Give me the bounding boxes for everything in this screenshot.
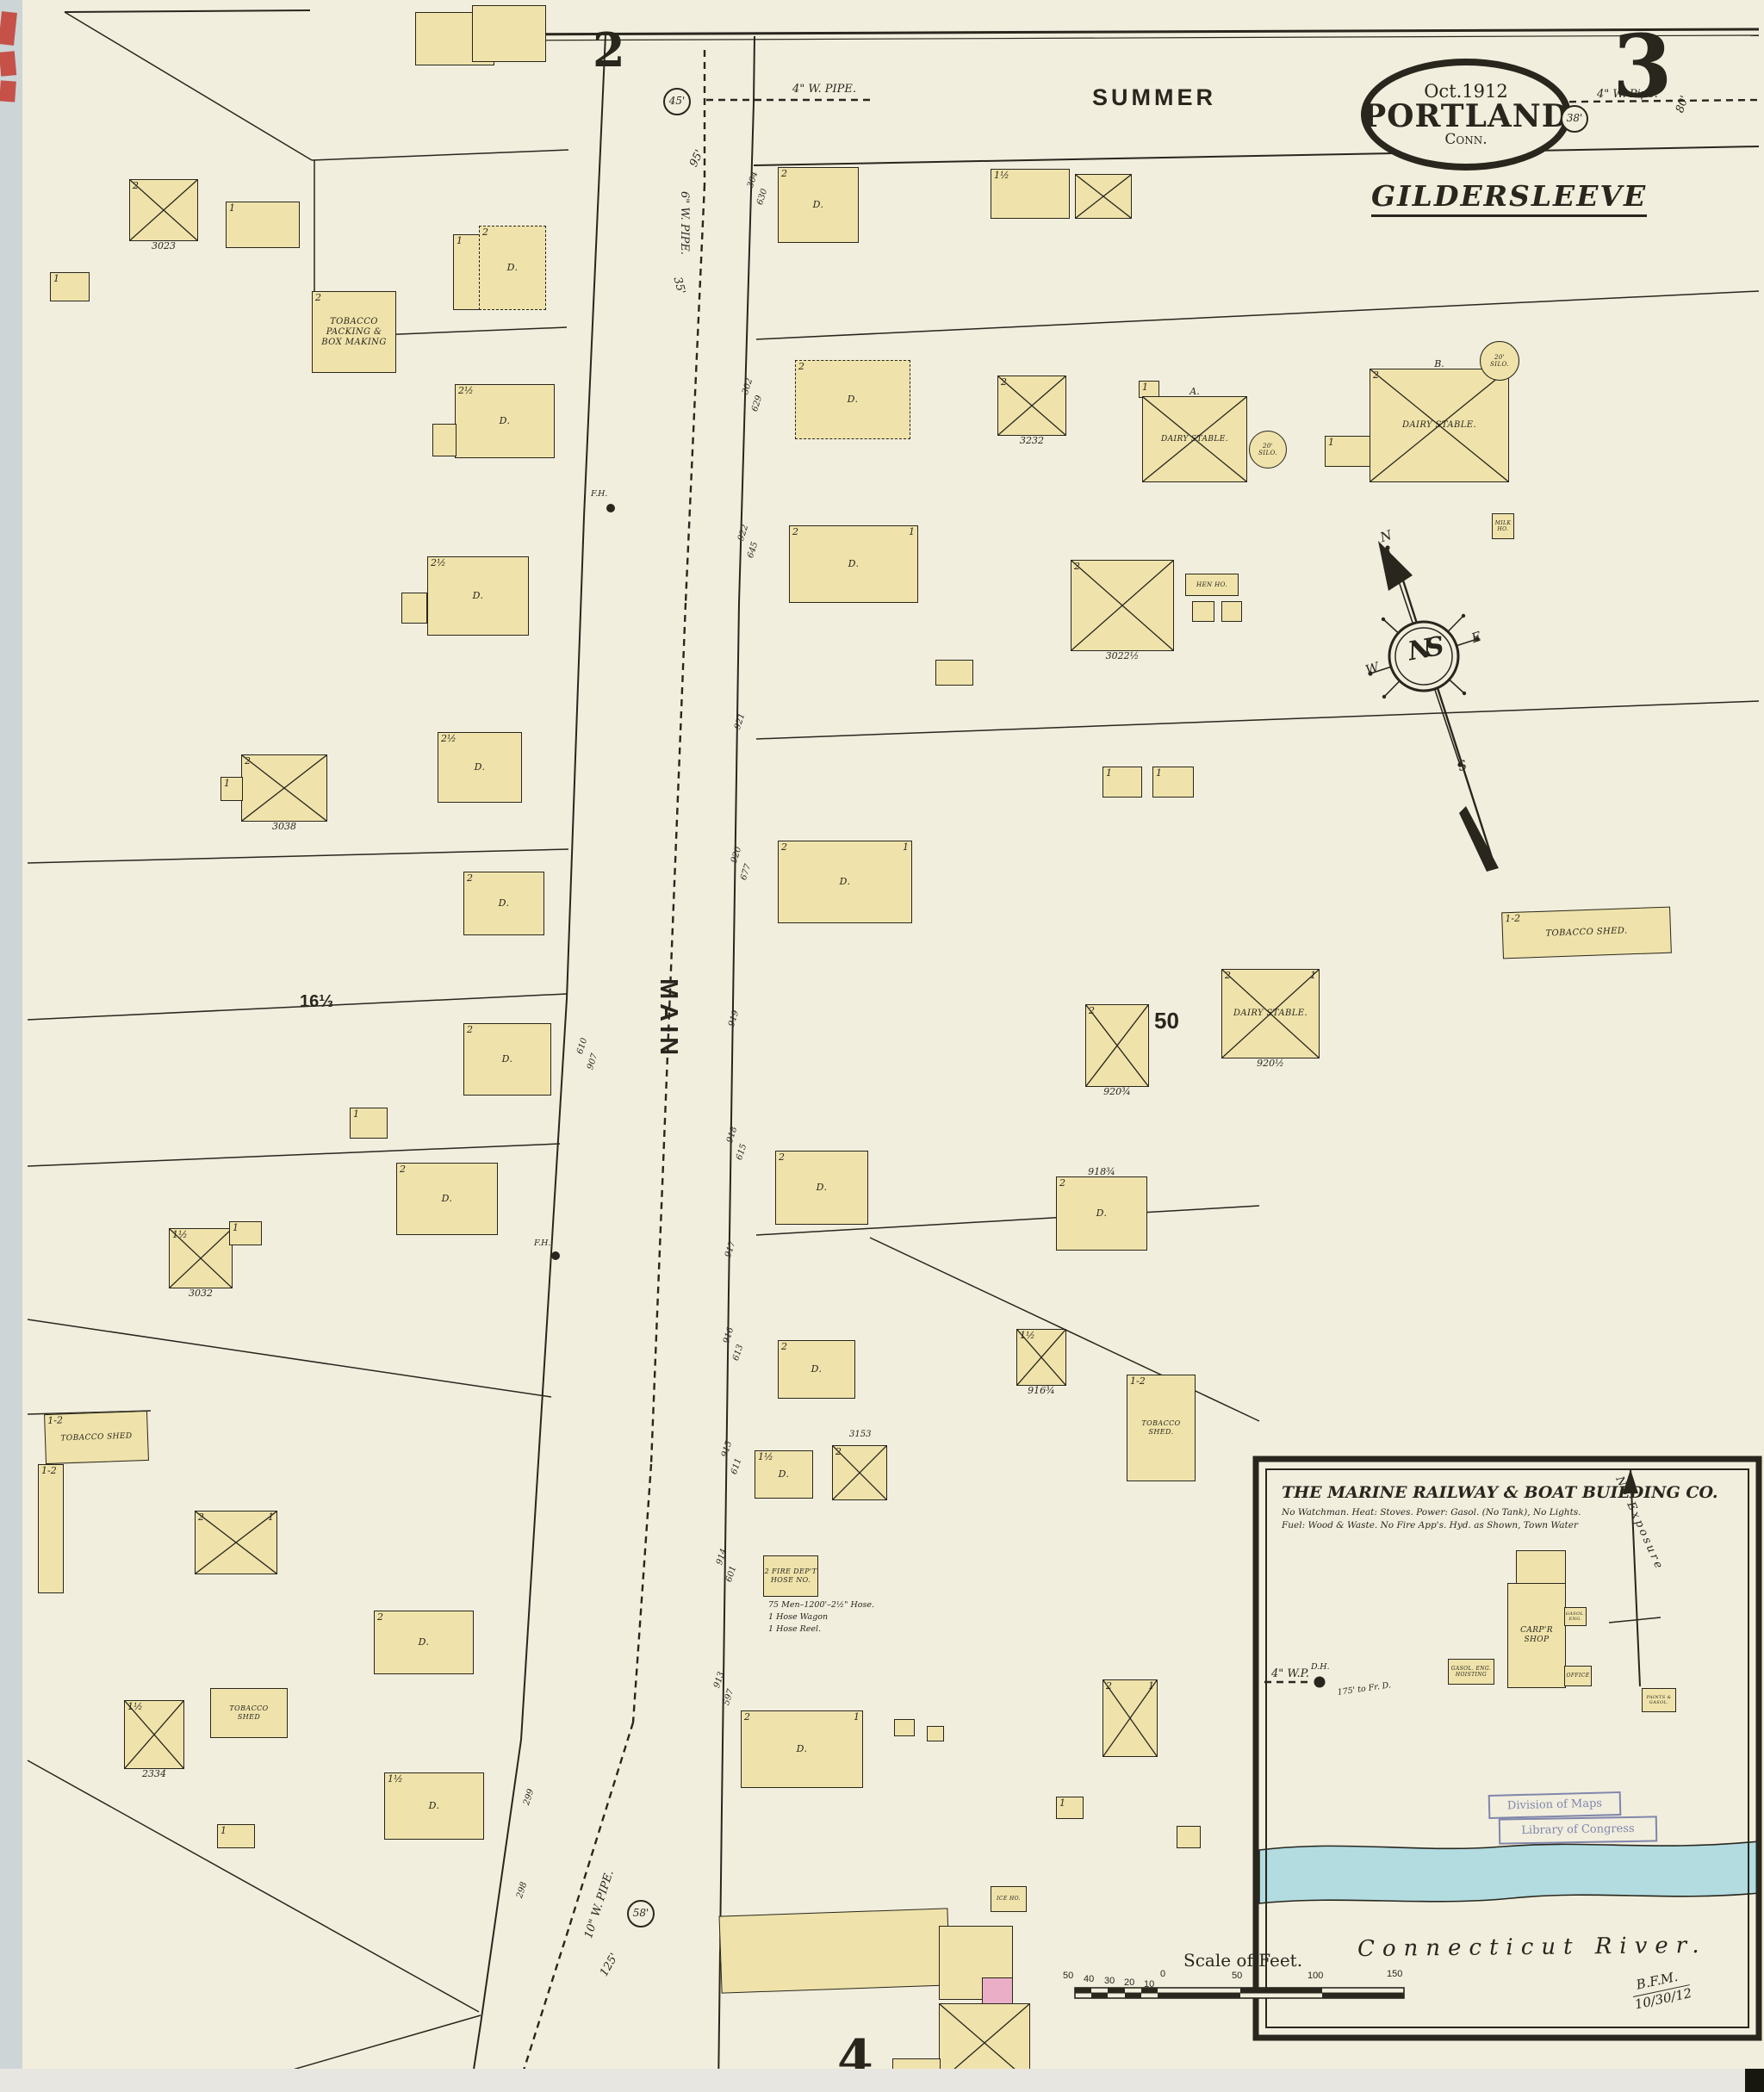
building: TOBACCO SHED.1-2: [1501, 907, 1672, 959]
map-label: 58': [627, 1900, 655, 1927]
building-stories: 2: [377, 1611, 383, 1623]
building-label: DAIRY STABLE.: [1222, 970, 1319, 1058]
building: 1: [226, 202, 300, 248]
building-label: PAINTS & GASOL.: [1643, 1689, 1675, 1711]
building: 21: [195, 1511, 277, 1574]
map-label: 20: [1124, 1977, 1134, 1988]
building-stories: 1: [909, 526, 915, 537]
building: 1: [229, 1221, 262, 1245]
building-stories: 1: [353, 1108, 359, 1120]
building: D.2: [775, 1151, 868, 1225]
building: DAIRY STABLE.A.: [1142, 396, 1247, 482]
building-annotation: B.: [1434, 358, 1444, 369]
building: GASOL. ENG.: [1564, 1607, 1587, 1626]
building-label: D.: [742, 1711, 862, 1787]
map-linework: [0, 0, 1764, 2092]
building: 1: [220, 777, 243, 801]
building-stories: 1: [1156, 767, 1162, 779]
building: D.2½: [455, 384, 555, 458]
building-stories: 1: [1106, 767, 1112, 779]
map-label: 150: [1387, 1969, 1402, 1979]
building-label: D.: [480, 227, 545, 309]
building-stories: 1: [1310, 970, 1316, 981]
building-address: 3023: [152, 240, 176, 251]
building-label: DAIRY STABLE.: [1370, 369, 1508, 481]
building-stories: 2: [1001, 376, 1007, 388]
building-label: GASOL. ENG.: [1565, 1608, 1586, 1625]
building-label: D.: [428, 557, 528, 635]
logo-city: PORTLAND: [1363, 102, 1569, 131]
stamp-division-of-maps: Division of Maps: [1488, 1791, 1622, 1819]
map-label: 3153: [849, 1430, 871, 1439]
building-stories: 1: [220, 1825, 227, 1836]
building-label: D.: [779, 1341, 854, 1398]
building-address: 920¾: [1103, 1086, 1131, 1097]
map-label: 50: [1063, 1971, 1073, 1981]
building-stories: 2: [482, 227, 488, 238]
building-stories: 1: [457, 235, 463, 246]
building-stories: 1½: [172, 1229, 188, 1240]
building-address: 2334: [142, 1768, 166, 1779]
building: D.2: [396, 1163, 498, 1235]
building: D.2: [795, 360, 910, 439]
building: D.2½: [438, 732, 522, 803]
building: DAIRY STABLE.2B.: [1370, 369, 1509, 482]
building: DAIRY STABLE.21920½: [1221, 969, 1320, 1058]
map-label: 4" W. PIPE.: [792, 83, 856, 96]
building: 23023: [129, 179, 198, 241]
building: D.2: [778, 167, 859, 243]
building-stories: 1: [1148, 1680, 1154, 1692]
building: 1: [1152, 767, 1194, 798]
building-stories: 2: [467, 1024, 473, 1035]
building: PAINTS & GASOL.: [1642, 1688, 1676, 1712]
cross-brace-icon: [1076, 175, 1131, 218]
building-label: TOBACCO SHED: [211, 1689, 287, 1737]
building-stories: 1½: [127, 1701, 143, 1712]
building: 1½3032: [169, 1228, 233, 1288]
cross-brace-icon: [242, 755, 326, 821]
building: D.2: [463, 1023, 551, 1096]
building-stories: 2: [835, 1446, 842, 1457]
building-stories: 1½: [758, 1451, 773, 1462]
building-stories: 2: [467, 872, 473, 884]
map-label: F.H.: [591, 489, 607, 499]
map-label: 38': [1561, 105, 1588, 133]
building-address: 916¾: [1028, 1385, 1055, 1396]
building-stories: 2: [744, 1711, 750, 1723]
building-label: D.: [779, 841, 911, 922]
building: D.2918¾: [1056, 1176, 1147, 1251]
building-stories: 2: [315, 292, 321, 303]
building: GASOL. ENG. HOISTING: [1448, 1659, 1494, 1685]
building: D.21: [741, 1710, 863, 1788]
map-label: 16⅓: [300, 992, 333, 1012]
building: 23038: [241, 754, 327, 822]
building-label: D.: [1057, 1177, 1146, 1250]
building-stories: 1-2: [1505, 913, 1520, 925]
building-label: HEN HO.: [1186, 574, 1238, 595]
building: TOBACCO PACKING & BOX MAKING2: [312, 291, 396, 373]
building: [1192, 601, 1214, 622]
building: HEN HO.: [1185, 574, 1239, 596]
building-stories: 2: [198, 1512, 204, 1523]
building-label: 20' SILO.: [1481, 342, 1519, 380]
map-label: D.H.: [1311, 1662, 1330, 1672]
building: D.2: [463, 872, 544, 935]
building-stories: 1: [53, 273, 59, 284]
map-label: 40: [1084, 1974, 1094, 1984]
building: 21: [1102, 1679, 1158, 1757]
building-label: D.: [796, 361, 910, 438]
building-label: 2 FIRE DEP'T HOSE NO.: [764, 1556, 817, 1596]
building: D.2: [778, 1340, 855, 1399]
building: 1: [1056, 1797, 1084, 1819]
street-label-main: MAIN: [654, 978, 682, 1059]
building-stories: 1: [233, 1222, 239, 1233]
building-stories: 2: [781, 841, 787, 853]
building-stories: 2: [781, 168, 787, 179]
building-stories: 1: [1142, 382, 1148, 393]
building: D.2½: [427, 556, 529, 636]
building: 1-2: [38, 1464, 64, 1593]
adjacent-sheet-number-top: 2: [593, 22, 625, 78]
map-label: 45': [663, 88, 691, 115]
building-label: D.: [464, 1024, 550, 1095]
cross-brace-icon: [130, 180, 197, 240]
building: [432, 424, 457, 456]
silo: 20' SILO.: [1480, 341, 1519, 381]
building-label: OFFICE: [1565, 1667, 1591, 1685]
building: [927, 1726, 944, 1741]
building-address: 3022½: [1106, 650, 1140, 661]
building-label: 20' SILO.: [1250, 431, 1286, 468]
building-stories: 1: [854, 1711, 860, 1723]
building-stories: 2: [779, 1152, 785, 1163]
red-edge-mark: [0, 51, 16, 76]
cross-brace-icon: [196, 1512, 276, 1574]
building-stories: 2: [792, 526, 798, 537]
map-label: 4" W.P.: [1271, 1667, 1309, 1680]
building: D.21: [778, 841, 912, 923]
building-stories: 1: [1328, 437, 1334, 448]
building-address: 3032: [189, 1288, 213, 1299]
street-label-summer: SUMMER: [1092, 84, 1216, 111]
building: D.2: [479, 226, 546, 310]
building: OFFICE: [1564, 1666, 1592, 1686]
building-label: TOBACCO SHED.: [1502, 908, 1671, 959]
building-stories: 2: [781, 1341, 787, 1352]
building-stories: 1: [229, 202, 235, 214]
building-stories: 1: [1059, 1797, 1065, 1809]
building: [1177, 1826, 1201, 1848]
building: [935, 660, 973, 686]
building: 1½: [991, 169, 1070, 219]
inset-title: THE MARINE RAILWAY & BOAT BUILDING CO.: [1282, 1483, 1718, 1502]
sanborn-map-sheet: 3 2 4 SUMMER MAIN GILDERSLEEVE Connectic…: [0, 0, 1764, 2092]
map-label: NS: [1406, 632, 1441, 667]
map-label: 50: [1232, 1971, 1242, 1981]
building: [894, 1719, 915, 1736]
map-label: 30: [1104, 1976, 1115, 1986]
cross-brace-icon: [1086, 1005, 1148, 1086]
building-stories: 2: [1106, 1680, 1112, 1692]
map-label: 1 Hose Wagon: [768, 1612, 828, 1622]
building-stories: 2: [400, 1164, 406, 1175]
scan-dark-corner: [1745, 2069, 1764, 2092]
building-stories: 1: [224, 778, 230, 789]
building-stories: 1½: [388, 1773, 403, 1785]
building-address: 3038: [272, 821, 296, 832]
building: [1221, 601, 1242, 622]
building: 1½916¾: [1016, 1329, 1066, 1386]
cross-brace-icon: [1071, 561, 1173, 650]
building: 1: [1325, 436, 1373, 467]
building-stories: 2: [1074, 561, 1080, 572]
red-edge-mark: [0, 80, 16, 102]
building: [401, 593, 427, 624]
building-label: D.: [779, 168, 858, 242]
building: 2: [832, 1445, 887, 1500]
building: CARP'R SHOP: [1507, 1583, 1566, 1688]
building: ICE HO.: [991, 1886, 1027, 1912]
building-stories: 2½: [458, 385, 474, 396]
logo-state: Conn.: [1444, 131, 1487, 148]
building: [1516, 1550, 1566, 1586]
building: 23232: [997, 376, 1066, 436]
building: [719, 1908, 951, 1993]
cross-brace-icon: [998, 376, 1065, 435]
inset-note-line2: Fuel: Wood & Waste. No Fire App's. Hyd. …: [1282, 1520, 1578, 1530]
building: 1: [1139, 381, 1159, 398]
building: 1½2334: [124, 1700, 184, 1769]
building-stories: 2: [798, 361, 804, 372]
map-label: 50: [1154, 1008, 1179, 1034]
building: D.1½: [384, 1772, 484, 1840]
building: TOBACCO SHED: [210, 1688, 288, 1738]
map-label: 4" W. Pipe.: [1597, 88, 1658, 101]
building-annotation: 918¾: [1088, 1166, 1115, 1177]
building-label: D.: [776, 1152, 867, 1224]
building-address: 920½: [1257, 1058, 1284, 1069]
building-stories: 1½: [1020, 1330, 1035, 1341]
building-label: ICE HO.: [991, 1887, 1026, 1911]
building-stories: 2: [1089, 1005, 1095, 1016]
building-stories: 1: [903, 841, 909, 853]
silo: 20' SILO.: [1249, 431, 1287, 469]
building-stories: 2½: [431, 557, 446, 568]
building-label: D.: [790, 526, 917, 602]
building-address: 3232: [1020, 435, 1044, 446]
stamp-library-of-congress: Library of Congress: [1499, 1816, 1657, 1844]
building-annotation: A.: [1189, 386, 1199, 397]
building: 1: [50, 272, 90, 301]
building: TOBACCO SHED.1-2: [1127, 1375, 1196, 1481]
building-label: DAIRY STABLE.: [1143, 397, 1246, 481]
building: 23022½: [1071, 560, 1174, 651]
building-stories: 1-2: [41, 1465, 57, 1476]
publisher-oval-logo: Oct.1912 PORTLAND Conn.: [1361, 59, 1571, 171]
building-stories: 2: [245, 755, 251, 767]
building-stories: 2: [1373, 369, 1379, 381]
building: MILK HO.: [1492, 513, 1514, 539]
building: D.2: [374, 1611, 474, 1674]
building: 1: [1102, 767, 1142, 798]
sheet-number: 3: [1612, 16, 1673, 117]
building-stories: 1-2: [47, 1414, 63, 1426]
river-band: [1259, 1841, 1759, 1903]
building-label: D.: [464, 872, 543, 934]
map-label: 100: [1307, 1971, 1323, 1981]
building: TOBACCO SHED1-2: [44, 1411, 149, 1464]
map-label: 6" W. PIPE.: [678, 191, 691, 255]
scan-bottom-band: [0, 2069, 1764, 2092]
building: 1: [217, 1824, 255, 1848]
building: [472, 5, 546, 62]
building-label: GASOL. ENG. HOISTING: [1449, 1660, 1494, 1684]
map-label: 0: [1160, 1969, 1165, 1979]
building: D.21: [789, 525, 918, 603]
river-label: Connecticut River.: [1357, 1933, 1707, 1962]
map-label: 1 Hose Reel.: [768, 1624, 821, 1634]
building-stories: 2: [1059, 1177, 1065, 1189]
building-stories: 2½: [441, 733, 457, 744]
building-label: D.: [397, 1164, 497, 1234]
building-stories: 1-2: [1130, 1375, 1146, 1387]
building: 2920¾: [1085, 1004, 1149, 1087]
building-stories: 2: [1225, 970, 1231, 981]
building: 2 FIRE DEP'T HOSE NO.: [763, 1555, 818, 1597]
building-stories: 1½: [994, 170, 1009, 181]
building: [1075, 174, 1132, 219]
map-label: 75 Men–1200'–2½" Hose.: [768, 1600, 874, 1610]
scale-bar: [1075, 1988, 1404, 1998]
building-label: TOBACCO PACKING & BOX MAKING: [313, 292, 395, 372]
building-label: MILK HO.: [1493, 514, 1513, 538]
scale-label: Scale of Feet.: [1183, 1950, 1302, 1971]
inset-note-line1: No Watchman. Heat: Stoves. Power: Gasol.…: [1282, 1507, 1581, 1518]
building-label: D.: [375, 1611, 473, 1673]
building-stories: 1: [268, 1512, 274, 1523]
building-label: TOBACCO SHED.: [1127, 1375, 1195, 1481]
cross-brace-icon: [1103, 1680, 1157, 1756]
building-stories: 2: [133, 180, 139, 191]
compass-rose: [1368, 541, 1499, 872]
building: D.1½: [755, 1450, 813, 1499]
map-label: F.H.: [534, 1238, 550, 1248]
building: 1: [350, 1108, 388, 1139]
building-label: CARP'R SHOP: [1508, 1584, 1565, 1687]
district-label: GILDERSLEEVE: [1371, 179, 1647, 217]
map-label: 10: [1144, 1979, 1154, 1990]
